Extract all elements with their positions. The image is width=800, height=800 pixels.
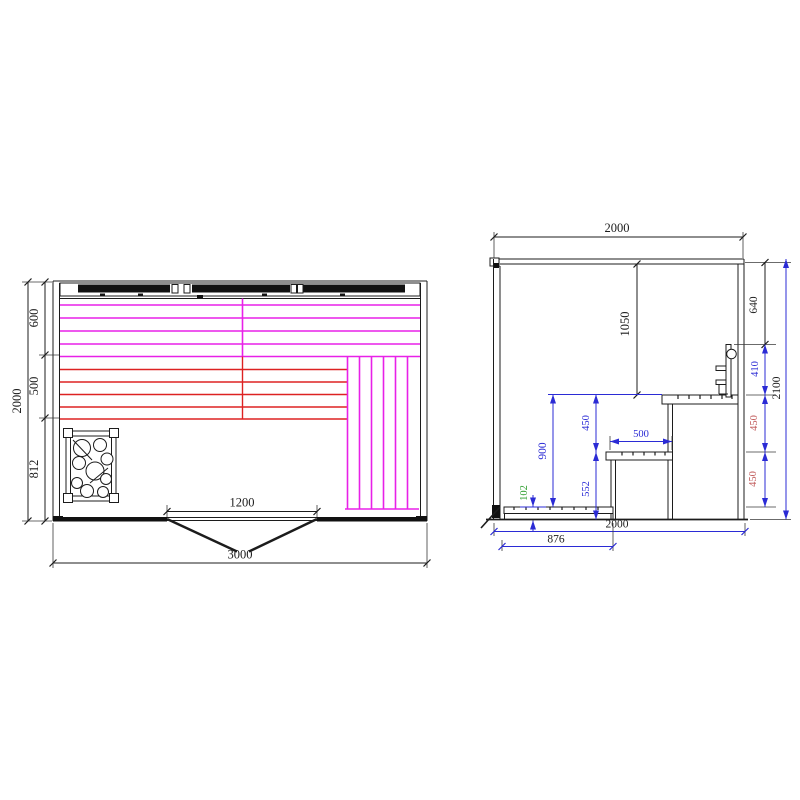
heater-lines-magenta — [60, 299, 420, 357]
dim-102: 102 — [519, 485, 530, 501]
backrest-knob — [727, 349, 737, 359]
control-panel-strip — [60, 283, 420, 299]
floor-platform — [504, 507, 613, 519]
backrest — [716, 345, 736, 398]
dim-zone-600: 600 — [27, 309, 41, 328]
dim-elev-width-bottom: 2000 — [606, 519, 629, 531]
dim-410: 410 — [750, 361, 761, 377]
elevation-view: 2000 1050 900 450 552 500 102 — [481, 221, 791, 551]
dim-door-1200: 1200 — [230, 496, 255, 510]
dim-900: 900 — [537, 442, 549, 460]
dim-500: 500 — [633, 429, 649, 440]
dim-2100: 2100 — [771, 376, 783, 399]
dim-plan-width: 3000 — [228, 548, 253, 562]
dim-552: 552 — [581, 481, 592, 497]
dim-640: 640 — [748, 296, 760, 314]
dim-450-lower: 450 — [748, 471, 759, 487]
elevation-dimensions: 2000 1050 900 450 552 500 102 — [491, 221, 792, 551]
dim-plan-depth: 2000 — [10, 389, 24, 414]
upper-bench — [662, 395, 738, 519]
dim-450-upper: 450 — [749, 415, 760, 431]
door — [167, 516, 317, 552]
plan-dimensions: 2000 600 500 812 1200 3000 — [10, 279, 431, 569]
plan-view: 2000 600 500 812 1200 3000 — [10, 279, 431, 569]
dim-zone-812: 812 — [27, 460, 41, 479]
stone-heater — [64, 429, 119, 503]
dim-interior-1050: 1050 — [618, 312, 632, 337]
drawing-canvas: 2000 600 500 812 1200 3000 — [0, 0, 800, 800]
heater-lines-red — [60, 357, 347, 420]
dim-876: 876 — [547, 534, 565, 546]
middle-bench — [606, 452, 673, 519]
dim-450-blue: 450 — [581, 415, 592, 431]
dim-elev-width-top: 2000 — [605, 221, 630, 235]
dim-zone-500: 500 — [27, 377, 41, 396]
side-bench-slats — [345, 357, 419, 509]
sauna-technical-drawing: 2000 600 500 812 1200 3000 — [0, 0, 800, 800]
